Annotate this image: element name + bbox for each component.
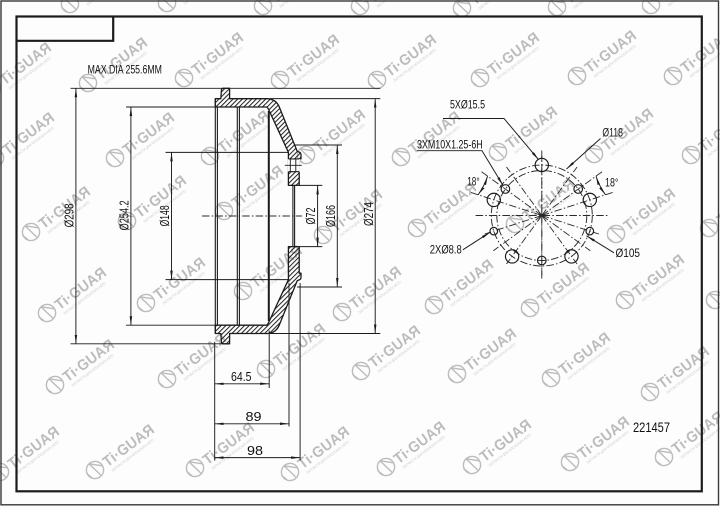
svg-text:Ø166: Ø166 (323, 205, 338, 227)
svg-text:221457: 221457 (633, 420, 670, 435)
svg-text:Ø72: Ø72 (303, 208, 318, 225)
svg-text:Ø118: Ø118 (602, 126, 623, 140)
svg-text:18°: 18° (605, 176, 619, 190)
svg-text:Ø298: Ø298 (62, 203, 77, 227)
svg-text:2XØ8.8: 2XØ8.8 (430, 243, 462, 257)
svg-text:64.5: 64.5 (231, 370, 252, 384)
svg-text:5XØ15.5: 5XØ15.5 (450, 97, 485, 111)
svg-text:Ø254.2: Ø254.2 (117, 200, 132, 230)
svg-text:3XM10X1.25-6H: 3XM10X1.25-6H (417, 137, 483, 151)
svg-text:Ø148: Ø148 (157, 205, 172, 226)
svg-text:Ø105: Ø105 (616, 246, 641, 260)
svg-text:MAX DIA 255.6MM: MAX DIA 255.6MM (88, 65, 162, 77)
svg-text:89: 89 (246, 410, 262, 424)
svg-text:Ø274: Ø274 (361, 202, 376, 226)
svg-text:98: 98 (247, 444, 263, 458)
svg-text:18°: 18° (467, 175, 480, 189)
